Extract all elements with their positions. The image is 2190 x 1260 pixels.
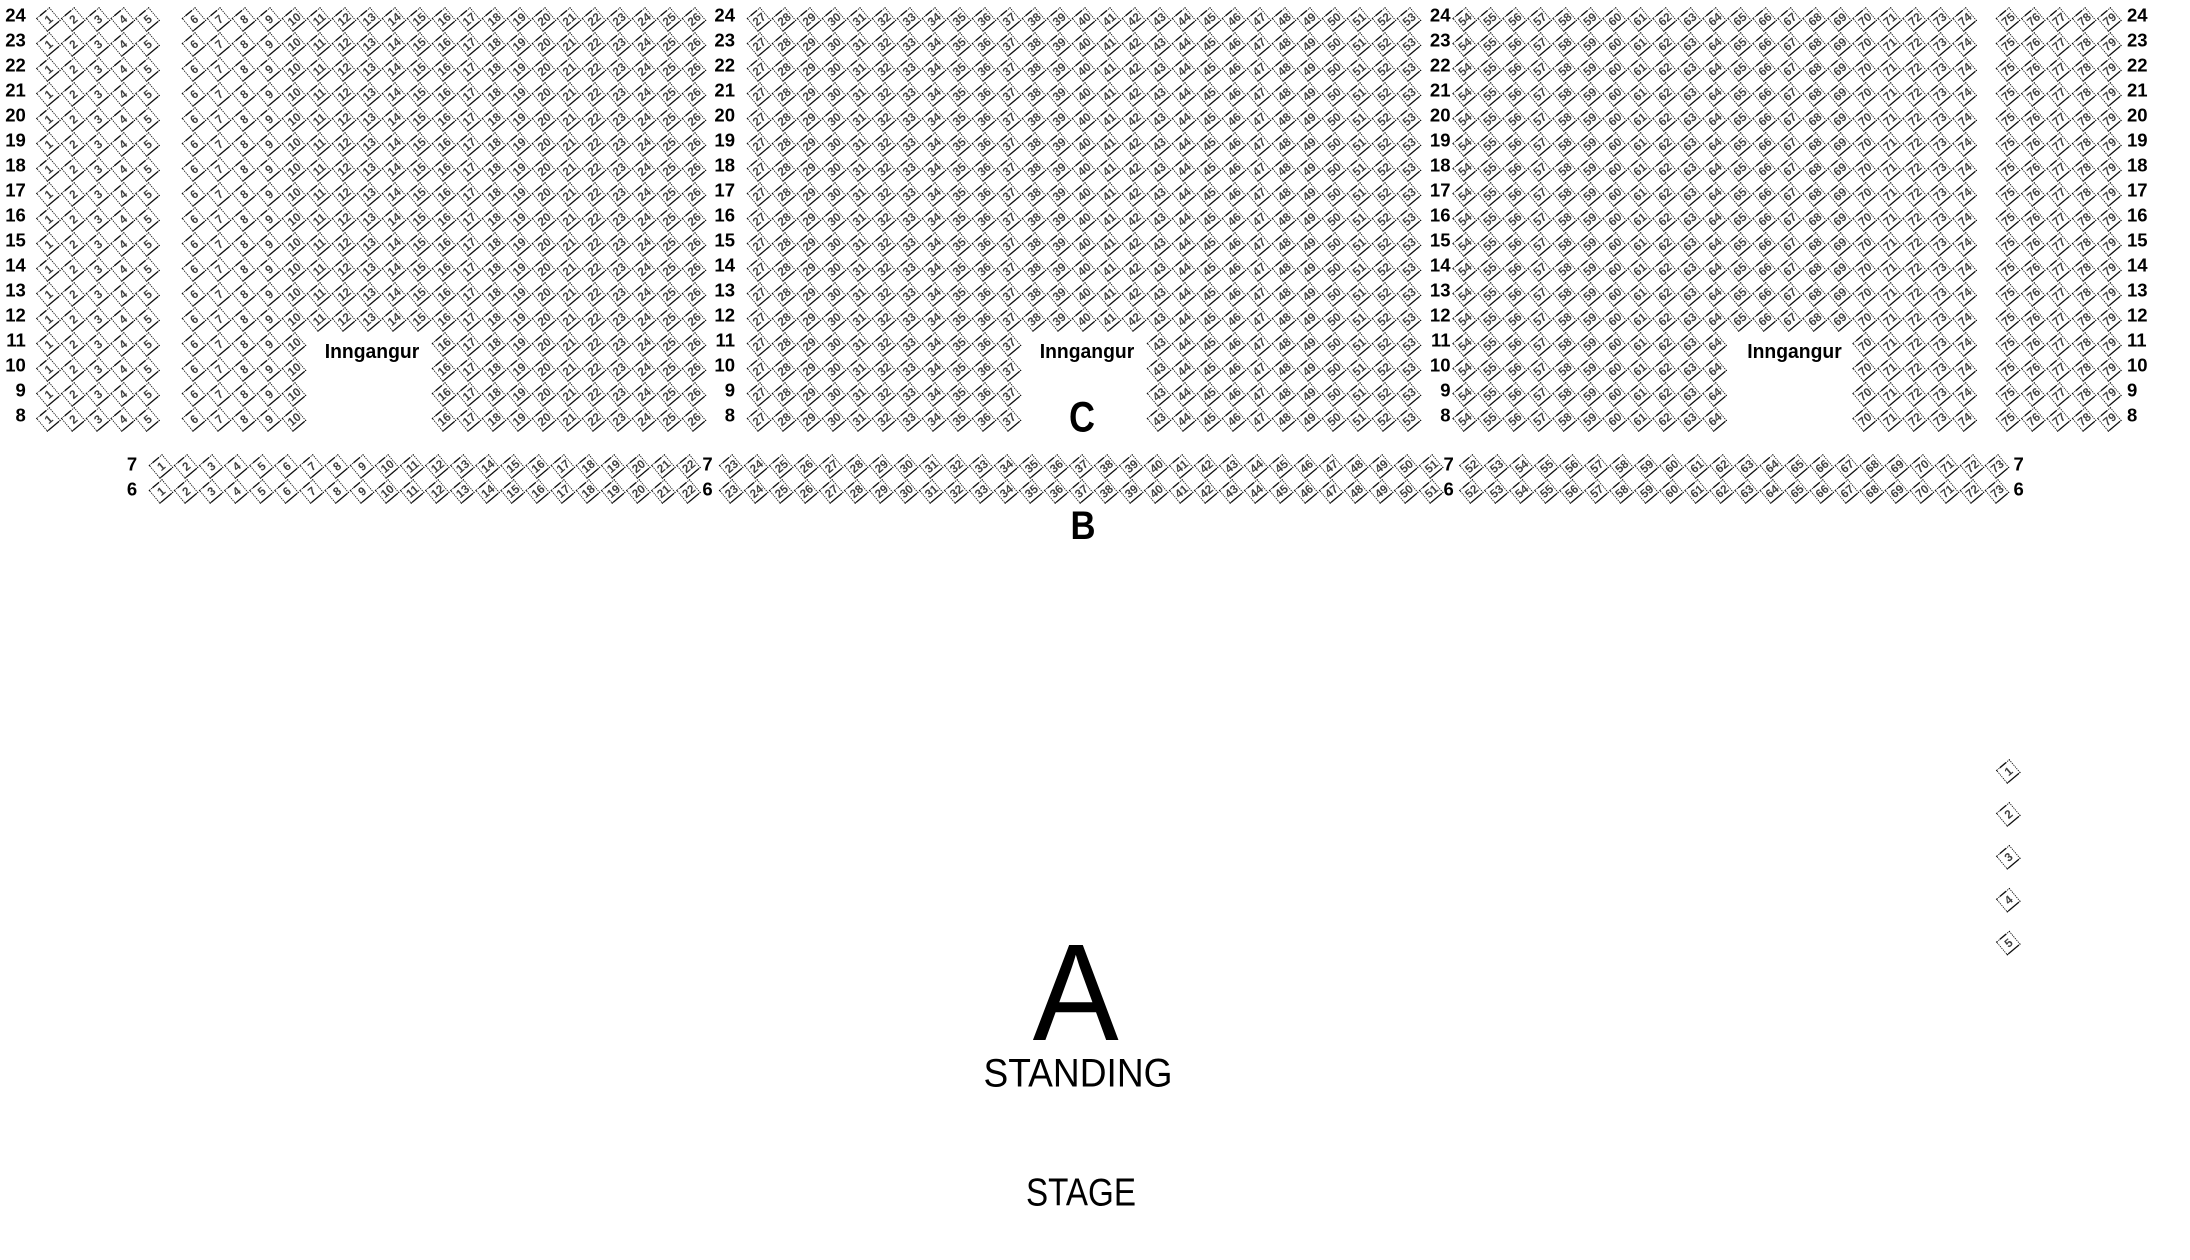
svg-text:22: 22 [1430,55,1451,76]
svg-text:22: 22 [714,55,735,76]
svg-text:STANDING: STANDING [984,1052,1173,1096]
svg-text:C: C [1069,394,1095,441]
svg-text:16: 16 [714,205,735,226]
svg-text:14: 14 [2127,255,2148,276]
svg-text:17: 17 [1430,180,1451,201]
svg-text:17: 17 [5,180,26,201]
svg-text:8: 8 [16,405,26,426]
svg-text:10: 10 [1430,355,1451,376]
svg-text:9: 9 [725,380,735,401]
svg-text:11: 11 [2127,330,2147,351]
svg-text:23: 23 [5,30,26,51]
svg-text:23: 23 [1430,30,1451,51]
svg-text:10: 10 [714,355,735,376]
svg-text:15: 15 [714,230,735,251]
svg-text:19: 19 [714,130,735,151]
svg-text:21: 21 [714,80,735,101]
svg-text:17: 17 [2127,180,2148,201]
svg-text:16: 16 [2127,205,2148,226]
svg-text:A: A [1033,916,1119,1070]
svg-text:10: 10 [5,355,26,376]
svg-text:13: 13 [2127,280,2148,301]
svg-text:23: 23 [714,30,735,51]
svg-text:12: 12 [5,305,26,326]
svg-text:22: 22 [5,55,26,76]
svg-text:9: 9 [16,380,26,401]
svg-text:20: 20 [2127,105,2148,126]
svg-text:13: 13 [1430,280,1451,301]
svg-text:19: 19 [5,130,26,151]
svg-text:14: 14 [1430,255,1451,276]
svg-text:18: 18 [714,155,735,176]
svg-text:15: 15 [1430,230,1451,251]
svg-text:16: 16 [5,205,26,226]
svg-text:19: 19 [2127,130,2148,151]
svg-text:12: 12 [714,305,735,326]
svg-text:11: 11 [6,330,26,351]
svg-text:Inngangur: Inngangur [325,340,420,363]
svg-text:19: 19 [1430,130,1451,151]
svg-text:24: 24 [2127,5,2148,26]
svg-text:Inngangur: Inngangur [1747,340,1842,363]
svg-text:7: 7 [1444,453,1454,474]
svg-text:STAGE: STAGE [1026,1172,1136,1215]
svg-text:23: 23 [2127,30,2148,51]
svg-text:7: 7 [2014,453,2024,474]
svg-text:7: 7 [702,453,712,474]
svg-text:9: 9 [2127,380,2137,401]
svg-text:14: 14 [714,255,735,276]
svg-text:12: 12 [1430,305,1451,326]
svg-text:21: 21 [2127,80,2148,101]
svg-text:8: 8 [2127,405,2137,426]
svg-text:15: 15 [2127,230,2148,251]
svg-text:B: B [1071,504,1096,548]
svg-text:24: 24 [5,5,26,26]
svg-text:20: 20 [714,105,735,126]
svg-text:6: 6 [127,478,137,499]
svg-text:8: 8 [1440,405,1450,426]
svg-text:7: 7 [127,453,137,474]
svg-text:20: 20 [5,105,26,126]
svg-text:13: 13 [714,280,735,301]
svg-text:18: 18 [5,155,26,176]
svg-text:18: 18 [2127,155,2148,176]
svg-text:24: 24 [1430,5,1451,26]
svg-text:11: 11 [715,330,735,351]
svg-text:6: 6 [702,478,712,499]
svg-text:8: 8 [725,405,735,426]
svg-text:6: 6 [1444,478,1454,499]
svg-text:10: 10 [2127,355,2148,376]
svg-text:20: 20 [1430,105,1451,126]
svg-text:6: 6 [2014,478,2024,499]
svg-text:22: 22 [2127,55,2148,76]
svg-text:17: 17 [714,180,735,201]
svg-text:11: 11 [1431,330,1451,351]
svg-text:16: 16 [1430,205,1451,226]
svg-text:18: 18 [1430,155,1451,176]
svg-text:12: 12 [2127,305,2148,326]
svg-text:14: 14 [5,255,26,276]
svg-text:Inngangur: Inngangur [1040,340,1135,363]
svg-text:21: 21 [1430,80,1451,101]
svg-text:24: 24 [714,5,735,26]
svg-text:15: 15 [5,230,26,251]
svg-text:13: 13 [5,280,26,301]
svg-text:9: 9 [1440,380,1450,401]
svg-text:21: 21 [5,80,26,101]
